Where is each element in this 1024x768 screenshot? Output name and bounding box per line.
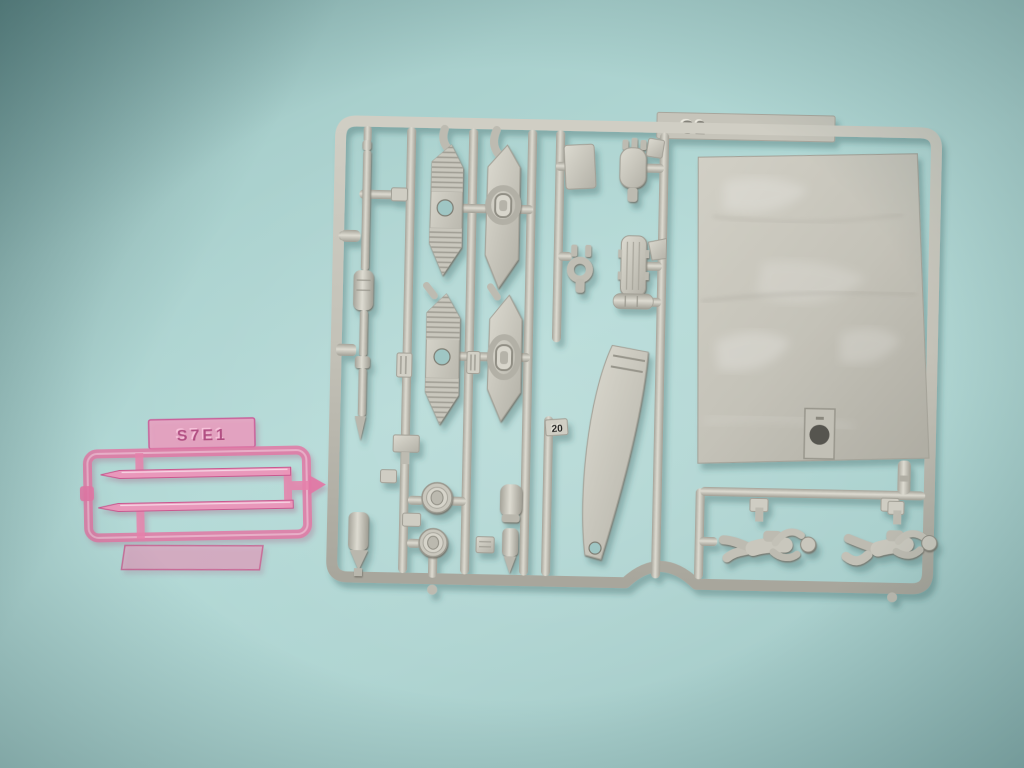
pink-tag-text: S7E1 bbox=[177, 427, 228, 445]
gun-barrel-part bbox=[350, 140, 376, 440]
pontoon-panel-hatch-ring bbox=[487, 295, 523, 422]
pontoon-panel-hatched bbox=[425, 294, 461, 425]
pink-crossbar bbox=[136, 509, 145, 539]
pontoon-panel-hatch-ring bbox=[484, 145, 520, 289]
ridged-panel-part bbox=[617, 236, 649, 297]
runner-stub bbox=[426, 286, 434, 296]
pink-sprue: S7E1 S7E1 bbox=[79, 417, 328, 574]
small-plate-part bbox=[564, 144, 596, 189]
runner bbox=[541, 416, 553, 576]
cylinder-part bbox=[502, 528, 519, 573]
gray-sprue: C2 C2 bbox=[331, 106, 946, 606]
svg-text:20: 20 bbox=[551, 423, 563, 435]
panel-hole bbox=[434, 349, 450, 365]
runner-stub bbox=[644, 164, 664, 173]
runner-stub bbox=[443, 129, 449, 149]
runner-stub bbox=[893, 510, 901, 524]
runner-stub bbox=[644, 262, 662, 271]
wedge-part bbox=[648, 238, 666, 260]
round-hatch-part bbox=[419, 528, 448, 557]
cylinder-part bbox=[897, 460, 911, 494]
runner-stub bbox=[490, 287, 497, 297]
sprue-nub bbox=[427, 585, 437, 595]
side-cylinder-part bbox=[340, 230, 360, 242]
pink-crossbar bbox=[292, 481, 309, 490]
large-panel-part bbox=[692, 149, 936, 468]
ridged-tab bbox=[467, 351, 480, 373]
pink-frame bbox=[87, 450, 308, 538]
curved-blade-part bbox=[582, 345, 649, 560]
left-rail-stub bbox=[336, 344, 356, 356]
runner-stub bbox=[558, 252, 572, 261]
box-part bbox=[476, 537, 494, 553]
runner-stub bbox=[755, 507, 763, 521]
pink-frame-inner-sheen bbox=[87, 450, 308, 538]
runner-stub bbox=[494, 130, 499, 154]
pink-arrow-gate bbox=[309, 475, 326, 495]
periscope-ring-part bbox=[570, 245, 592, 293]
round-hatch-part bbox=[422, 482, 453, 513]
pink-bottom-tag bbox=[121, 543, 263, 573]
runner-stub bbox=[699, 537, 717, 546]
box-part bbox=[393, 435, 420, 465]
gate-tab bbox=[380, 470, 396, 483]
small-plate-part bbox=[646, 138, 665, 158]
runner bbox=[651, 132, 669, 578]
pink-antenna-rod bbox=[101, 467, 291, 479]
paddle-part bbox=[619, 138, 646, 203]
lower-cylinder-part bbox=[347, 512, 368, 576]
panel-hole bbox=[437, 200, 453, 216]
blade-hole bbox=[589, 542, 601, 554]
gate-tab bbox=[391, 188, 407, 201]
cylinder-part bbox=[500, 484, 523, 522]
photo-background: S7E1 S7E1 C2 C2 bbox=[0, 0, 1024, 768]
part-number-tag: 20 20 bbox=[545, 419, 568, 436]
pink-left-nub bbox=[80, 486, 94, 501]
runner bbox=[694, 488, 705, 579]
cylinder-part bbox=[613, 293, 653, 309]
runner-stub bbox=[364, 126, 372, 142]
gate-tab bbox=[402, 513, 420, 526]
soldier-figure bbox=[723, 530, 816, 560]
pink-antenna-rod bbox=[98, 500, 293, 512]
ridged-tab bbox=[397, 353, 412, 377]
pontoon-panel-hatched bbox=[429, 145, 464, 276]
